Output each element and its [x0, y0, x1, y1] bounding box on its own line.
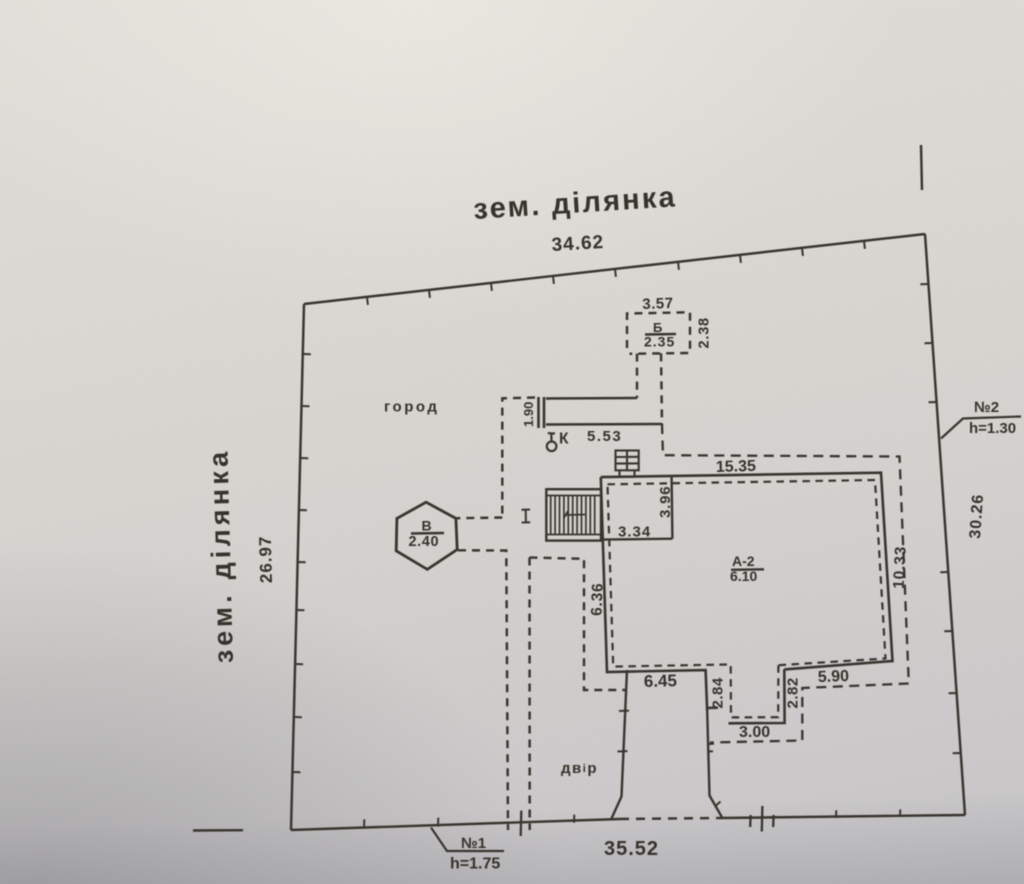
svg-text:В: В [422, 518, 432, 534]
svg-text:35.52: 35.52 [604, 838, 659, 860]
svg-text:2.84: 2.84 [710, 677, 727, 708]
svg-text:3.96: 3.96 [657, 486, 674, 518]
svg-text:3.34: 3.34 [618, 524, 651, 541]
svg-text:двір: двір [561, 760, 598, 777]
svg-text:зем. ділянка: зем. ділянка [203, 447, 239, 663]
svg-text:2.35: 2.35 [644, 334, 675, 350]
svg-text:10.33: 10.33 [891, 546, 910, 590]
svg-text:h=1.75: h=1.75 [450, 856, 500, 873]
svg-text:№1: №1 [461, 835, 486, 852]
svg-text:6.36: 6.36 [589, 582, 607, 616]
svg-text:5.90: 5.90 [818, 668, 850, 686]
svg-text:К: К [559, 431, 569, 448]
svg-text:15.35: 15.35 [716, 458, 757, 476]
svg-text:2.82: 2.82 [785, 677, 802, 708]
svg-text:3.00: 3.00 [739, 724, 770, 741]
svg-text:А-2: А-2 [732, 553, 755, 569]
svg-text:2.40: 2.40 [409, 534, 440, 550]
svg-text:30.26: 30.26 [967, 493, 987, 539]
svg-text:6.45: 6.45 [644, 671, 678, 691]
svg-text:5.53: 5.53 [587, 428, 622, 445]
svg-text:h=1.30: h=1.30 [969, 420, 1016, 437]
svg-text:1.90: 1.90 [521, 402, 536, 427]
svg-text:город: город [384, 399, 439, 416]
svg-text:№2: №2 [974, 399, 999, 416]
svg-text:26.97: 26.97 [256, 535, 276, 583]
svg-text:2.38: 2.38 [697, 317, 713, 348]
svg-text:34.62: 34.62 [551, 232, 605, 256]
svg-text:3.57: 3.57 [642, 295, 674, 313]
